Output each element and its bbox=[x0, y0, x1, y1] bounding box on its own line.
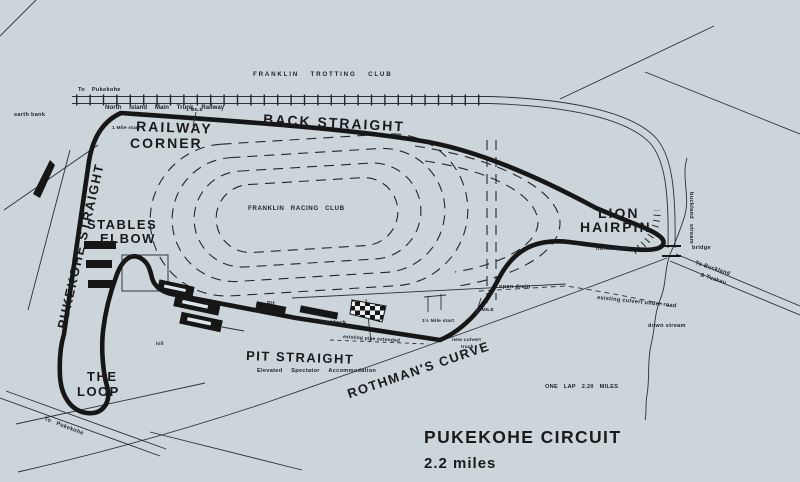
lion-hairpin-label-2: HAIRPIN bbox=[580, 219, 652, 235]
pit-label: Pit bbox=[267, 301, 275, 307]
spectator-accommodation-label: Elevated Spectator Accommodation bbox=[257, 368, 376, 374]
railway-corner-label-2: CORNER bbox=[130, 135, 203, 151]
stables-elbow-label-2: ELBOW bbox=[100, 231, 156, 246]
to-pukekohe-top-label: To Pukekohe bbox=[78, 87, 121, 93]
one-mile-marker-back: 1 MILE bbox=[186, 107, 203, 113]
hill-label: hill bbox=[156, 341, 164, 347]
racing-club-label: FRANKLIN RACING CLUB bbox=[248, 205, 345, 212]
trotting-club-label: FRANKLIN TROTTING CLUB bbox=[253, 71, 392, 78]
map-distance: 2.2 miles bbox=[424, 455, 496, 472]
north-bank-label: north bank bbox=[596, 246, 628, 252]
earth-bank-label: earth bank bbox=[14, 112, 46, 118]
stables-building-3 bbox=[88, 280, 114, 288]
map-title: PUKEKOHE CIRCUIT bbox=[424, 427, 621, 447]
bridge-label: bridge bbox=[692, 245, 711, 251]
down-stream-label: down stream bbox=[648, 323, 686, 329]
paddock-label: Paddock bbox=[321, 320, 347, 326]
stables-elbow-label-1: STABLES bbox=[87, 217, 157, 232]
circuit-map-canvas: FRANKLIN TROTTING CLUB To Pukekohe North… bbox=[0, 0, 800, 482]
circuit-map-page: FRANKLIN TROTTING CLUB To Pukekohe North… bbox=[0, 0, 800, 482]
one-and-half-mile-start-label: 1½ Mile start bbox=[422, 317, 454, 324]
one-mile-marker-rothmans: 1 MILE bbox=[477, 307, 494, 313]
buckland-stream-label: buckland stream bbox=[688, 192, 694, 244]
railway-name-label: North Island Main Trunk Railway bbox=[105, 104, 225, 111]
one-lap-note: ONE LAP 2.20 MILES bbox=[545, 384, 618, 390]
the-loop-label-1: THE bbox=[87, 369, 118, 384]
open-drain-label: open drain bbox=[499, 284, 531, 290]
the-loop-label-2: LOOP bbox=[77, 384, 120, 399]
railway-corner-label-1: RAILWAY bbox=[136, 118, 213, 137]
stables-building-2 bbox=[86, 260, 112, 268]
